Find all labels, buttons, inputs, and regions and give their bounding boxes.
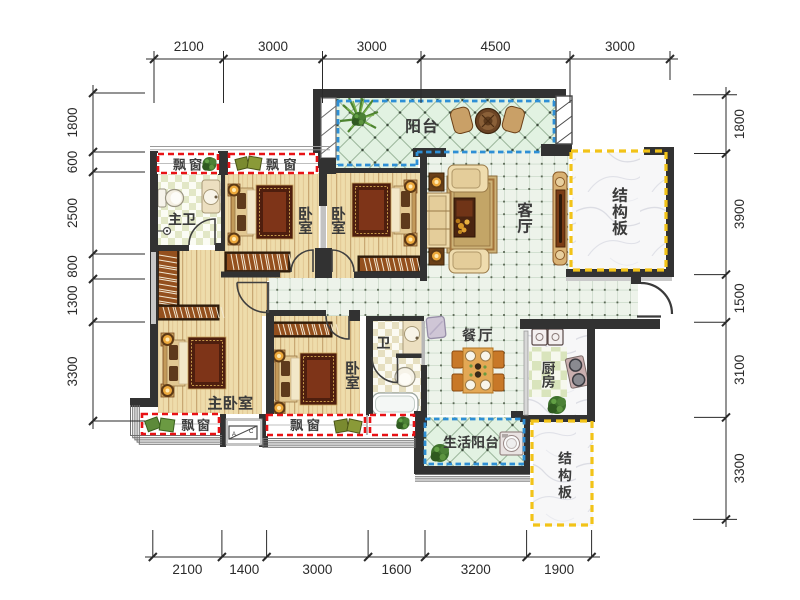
svg-text:1500: 1500: [732, 283, 747, 313]
svg-text:3000: 3000: [605, 39, 635, 54]
svg-text:3900: 3900: [732, 199, 747, 229]
svg-text:C: C: [249, 429, 254, 435]
svg-text:A: A: [232, 432, 236, 438]
svg-text:2100: 2100: [174, 39, 204, 54]
svg-text:3000: 3000: [302, 562, 332, 577]
svg-text:3000: 3000: [357, 39, 387, 54]
svg-text:2500: 2500: [65, 198, 80, 228]
svg-text:800: 800: [65, 255, 80, 278]
svg-text:1400: 1400: [229, 562, 259, 577]
svg-text:3000: 3000: [258, 39, 288, 54]
svg-text:4500: 4500: [480, 39, 510, 54]
svg-text:3300: 3300: [65, 356, 80, 386]
svg-text:1300: 1300: [65, 285, 80, 315]
svg-text:2100: 2100: [172, 562, 202, 577]
svg-text:1600: 1600: [382, 562, 412, 577]
svg-text:1800: 1800: [732, 109, 747, 139]
svg-text:3200: 3200: [461, 562, 491, 577]
svg-text:3300: 3300: [732, 453, 747, 483]
svg-text:1800: 1800: [65, 107, 80, 137]
svg-text:1900: 1900: [544, 562, 574, 577]
svg-text:600: 600: [65, 151, 80, 174]
svg-text:3100: 3100: [732, 355, 747, 385]
